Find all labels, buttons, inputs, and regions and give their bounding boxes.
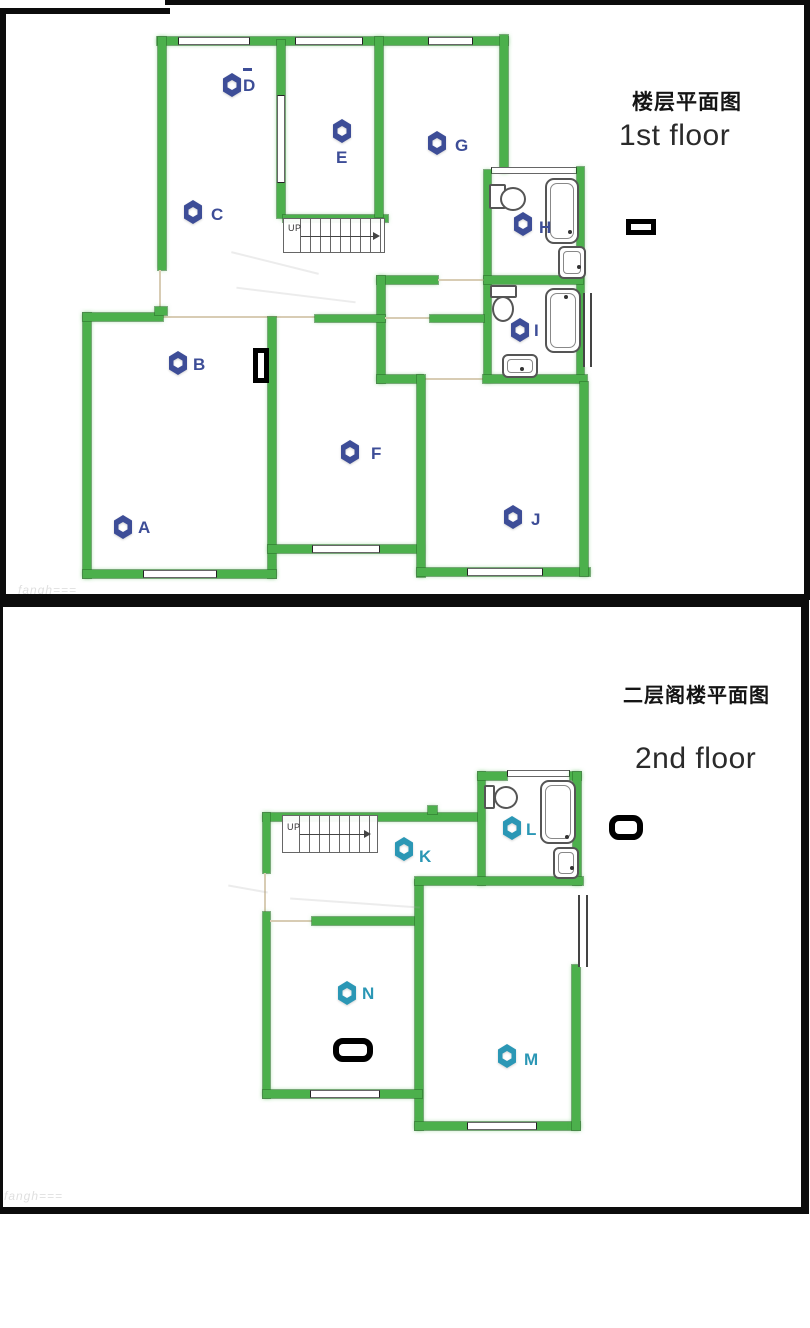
door-opening	[270, 920, 312, 922]
photo-frame-border	[165, 0, 810, 5]
window	[178, 37, 250, 45]
wall	[428, 806, 437, 814]
marker-C-label: C	[211, 205, 223, 225]
marker-F-label: F	[371, 444, 381, 464]
marker-B-label: B	[193, 355, 205, 375]
door-opening	[423, 378, 483, 380]
window	[467, 568, 543, 576]
toilet-icon	[500, 187, 526, 211]
photo-artifact	[290, 897, 420, 908]
photo-frame-border	[804, 0, 810, 600]
wall	[312, 917, 420, 925]
marker-K-label: K	[419, 847, 431, 867]
wall	[478, 772, 507, 780]
marker-E-icon[interactable]	[332, 119, 352, 143]
window	[310, 1090, 380, 1098]
sink-icon	[502, 354, 538, 378]
marker-L-icon[interactable]	[502, 816, 522, 840]
floor2-title-en: 2nd floor	[635, 742, 756, 776]
wall	[377, 276, 438, 284]
wall	[417, 375, 425, 577]
marker-M-icon[interactable]	[497, 1044, 517, 1068]
window	[507, 770, 570, 777]
window	[143, 570, 217, 578]
door-opening	[385, 317, 430, 319]
door-opening	[438, 279, 484, 281]
marker-D-dash	[243, 68, 252, 71]
photo-frame-border	[801, 600, 809, 1214]
legend-rect-icon	[253, 348, 269, 383]
marker-I-label: I	[534, 321, 539, 341]
window	[467, 1122, 537, 1130]
photo-artifact	[231, 251, 319, 275]
stairs-up-label: UP	[287, 822, 301, 832]
marker-H-icon[interactable]	[513, 212, 533, 236]
marker-J-icon[interactable]	[503, 505, 523, 529]
bathtub-icon	[540, 780, 576, 844]
window	[277, 95, 285, 183]
wall	[430, 315, 484, 322]
marker-A-label: A	[138, 518, 150, 538]
marker-C-icon[interactable]	[183, 200, 203, 224]
marker-K-icon[interactable]	[394, 837, 414, 861]
window	[295, 37, 363, 45]
wall	[500, 35, 508, 173]
marker-F-icon[interactable]	[340, 440, 360, 464]
stairs-arrowhead	[373, 232, 380, 240]
wall	[580, 382, 588, 576]
wall	[158, 37, 166, 270]
marker-L-label: L	[526, 820, 536, 840]
marker-J-label: J	[531, 510, 540, 530]
photo-frame-border	[0, 600, 3, 1214]
sink-icon	[558, 246, 586, 279]
marker-B-icon[interactable]	[168, 351, 188, 375]
balcony-door	[583, 293, 592, 367]
legend-rect-icon	[609, 815, 643, 840]
wall	[375, 37, 383, 217]
stairs-up-label: UP	[288, 223, 302, 233]
marker-I-icon[interactable]	[510, 318, 530, 342]
floor2-title-zh: 二层阁楼平面图	[623, 679, 770, 708]
marker-N-icon[interactable]	[337, 981, 357, 1005]
wall	[572, 965, 580, 1130]
window	[491, 167, 577, 174]
marker-M-label: M	[524, 1050, 538, 1070]
photo-frame-border	[0, 1207, 808, 1214]
legend-rect-icon	[626, 219, 656, 235]
watermark: fangh===	[4, 1189, 63, 1203]
stairs: UP	[282, 815, 378, 853]
wall	[377, 276, 385, 383]
toilet-icon	[494, 786, 518, 809]
wall	[315, 315, 385, 322]
marker-D-label: D	[243, 76, 255, 96]
legend-rect-icon	[333, 1038, 373, 1062]
window	[312, 545, 380, 553]
wall	[268, 317, 276, 578]
floor1-title-zh: 楼层平面图	[632, 86, 742, 116]
photo-artifact	[236, 287, 355, 304]
wall	[263, 813, 270, 873]
window	[428, 37, 473, 45]
marker-G-label: G	[455, 136, 468, 156]
watermark: fangh===	[18, 583, 77, 597]
stairs: UP	[283, 218, 385, 253]
marker-E-label: E	[336, 148, 347, 168]
floor1-title-en: 1st floor	[619, 119, 730, 153]
marker-N-label: N	[362, 984, 374, 1004]
photo-frame-border	[2, 8, 170, 14]
marker-A-icon[interactable]	[113, 515, 133, 539]
wall	[155, 307, 167, 315]
wall	[83, 313, 91, 578]
stairs-arrowhead	[364, 830, 371, 838]
floorplan-page: UP 楼层平面图 1st floor fangh=== A B C D E F …	[0, 0, 810, 1328]
stairs-arrow	[301, 236, 377, 237]
photo-artifact	[228, 885, 268, 894]
photo-frame-border	[0, 600, 808, 607]
marker-G-icon[interactable]	[427, 131, 447, 155]
wall	[263, 912, 270, 1098]
sink-icon	[553, 847, 579, 879]
marker-D-icon[interactable]	[222, 73, 242, 97]
door-opening	[163, 316, 315, 318]
balcony-door	[578, 895, 588, 967]
marker-H-label: H	[539, 218, 551, 238]
wall	[83, 313, 163, 321]
photo-frame-border	[0, 8, 6, 600]
stairs-arrow	[300, 834, 368, 835]
bathtub-icon	[545, 288, 581, 353]
